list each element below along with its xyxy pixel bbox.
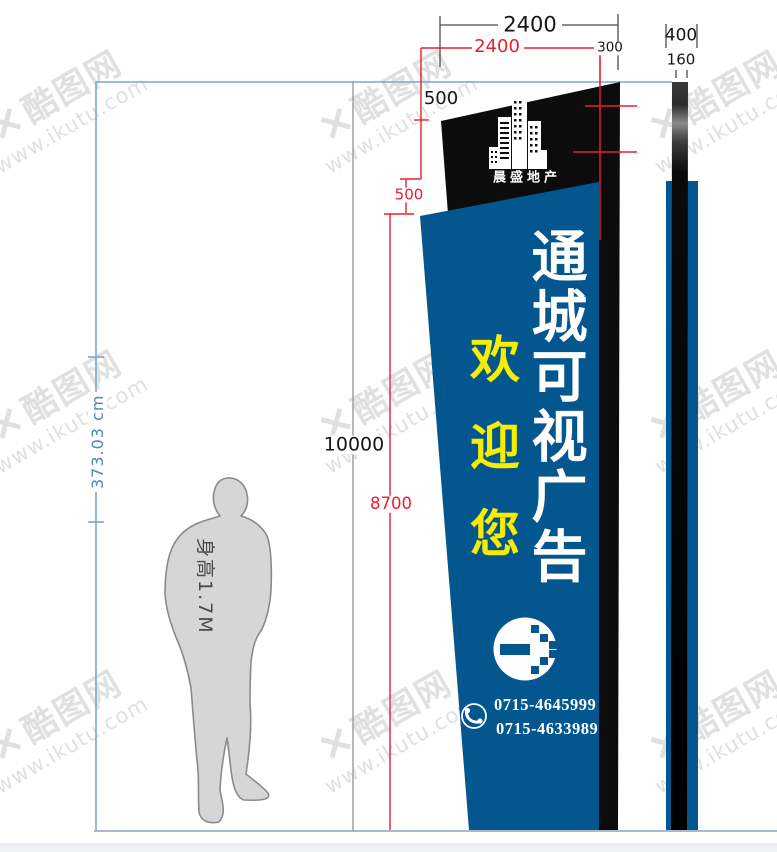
side-view-pole (671, 82, 688, 830)
direction-arrow-icon (494, 618, 558, 681)
dim-side-width: 400 (665, 28, 697, 45)
bottom-strip (0, 843, 777, 852)
dim-header-height-black: 500 (424, 90, 458, 108)
human-figure-silhouette (165, 478, 271, 823)
dim-panel-height: 8700 (367, 496, 415, 513)
logo-company-name: 晨盛地产 (493, 167, 561, 186)
phone-number-1: 0715-4645999 (494, 695, 596, 715)
dim-total-height: 10000 (321, 436, 387, 455)
dim-side-depth: 160 (667, 53, 696, 68)
phone-number-2: 0715-4633989 (496, 719, 598, 739)
sign-welcome-text: 欢迎您 (455, 333, 527, 594)
dim-top-width-red: 2400 (474, 38, 520, 56)
dim-reference-height: 373.03 cm (88, 392, 107, 492)
pylon-sign-drawing (0, 0, 777, 852)
dim-top-width-black: 2400 (503, 15, 556, 36)
signage-design-canvas: ×酷图网 www.ikutu.com ×酷图网 www.ikutu.com ×酷… (0, 0, 777, 852)
figure-height-label: 身高1.7M (193, 538, 220, 635)
dim-header-height-red: 500 (392, 188, 427, 203)
dim-top-offset: 300 (594, 41, 626, 55)
